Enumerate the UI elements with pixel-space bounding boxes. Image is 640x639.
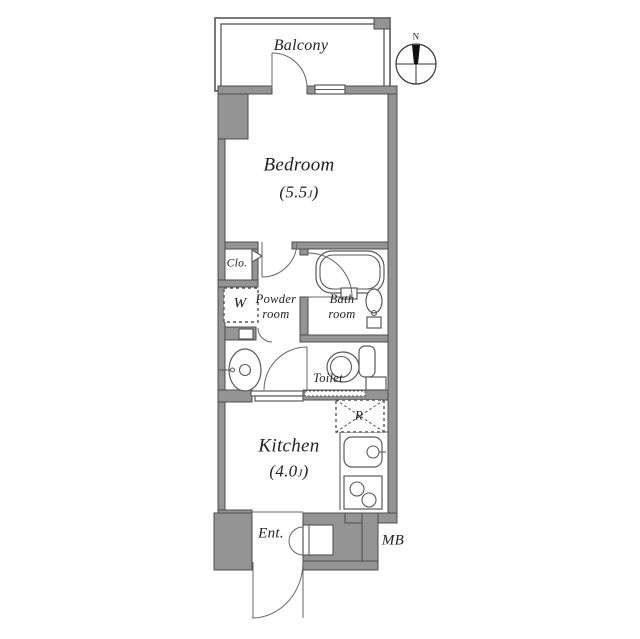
powder-room-label-line1: Powder xyxy=(256,292,297,306)
bath-counter xyxy=(366,289,382,313)
closet-label: Clo. xyxy=(227,258,248,270)
bedroom-size: (5.5J) xyxy=(279,184,318,201)
floorplan-page: Balcony Bedroom (5.5J) Clo. W Powderroom… xyxy=(0,0,640,639)
balcony-corner-block xyxy=(374,18,390,29)
balcony-outer-rail xyxy=(215,18,390,91)
toilet-duct-box xyxy=(366,377,386,390)
wall-right xyxy=(388,94,397,523)
bath-stool xyxy=(367,317,381,328)
wall-powder-bottom xyxy=(218,390,252,402)
floorplan-drawing xyxy=(0,0,640,639)
bath-shower-unit xyxy=(366,289,382,328)
wall-top-left xyxy=(218,86,272,94)
kitchen-sink xyxy=(344,437,382,467)
toilet-label: Toilet xyxy=(313,372,343,385)
wall-left xyxy=(218,94,225,515)
balcony-outline xyxy=(215,18,390,91)
bath-room-label-line2: room xyxy=(328,307,355,321)
kitchen-label: Kitchen xyxy=(258,437,319,456)
powder-kitchen-sliding-door[interactable] xyxy=(251,391,303,396)
bedroom-size-paren: ) xyxy=(313,183,319,202)
powder-kitchen-sliding-door-leaf[interactable] xyxy=(255,396,303,401)
balcony-label: Balcony xyxy=(274,38,329,54)
washer-tap-box xyxy=(239,329,253,339)
bedroom-label: Bedroom xyxy=(263,156,334,175)
pillar-bedroom-topleft xyxy=(218,94,248,139)
washbasin-bowl xyxy=(229,349,261,391)
wall-bedroom-bottom-right xyxy=(292,242,388,249)
bedroom-size-value: (5.5 xyxy=(279,183,307,202)
hatched-lintel-strip xyxy=(305,391,365,396)
toilet-tank xyxy=(359,346,375,377)
shoe-cabinet-body xyxy=(303,525,333,555)
entrance-label: Ent. xyxy=(258,527,284,542)
wall-powder-bath-top-stub xyxy=(300,249,308,255)
wall-bottom xyxy=(303,561,378,570)
meter-box-label: MB xyxy=(382,534,404,549)
refrigerator-label: R xyxy=(355,409,363,422)
wall-closet-bottom xyxy=(218,280,258,287)
block-entrance-left xyxy=(214,513,252,570)
kitchen-size-paren: ) xyxy=(303,462,309,481)
powder-room-label: Powderroom xyxy=(256,292,297,322)
bath-room-label-line1: Bath xyxy=(330,292,355,306)
compass xyxy=(396,44,436,84)
kitchen-size-value: (4.0 xyxy=(269,462,297,481)
powder-room-label-line2: room xyxy=(262,307,289,321)
wall-bath-toilet xyxy=(300,335,388,342)
compass-north-label: N xyxy=(413,33,420,42)
kitchen-size: (4.0J) xyxy=(269,463,308,480)
wall-bedroom-bottom-left xyxy=(225,242,258,249)
bath-room-label: Bathroom xyxy=(328,292,355,322)
washing-machine-label: W xyxy=(234,297,247,312)
